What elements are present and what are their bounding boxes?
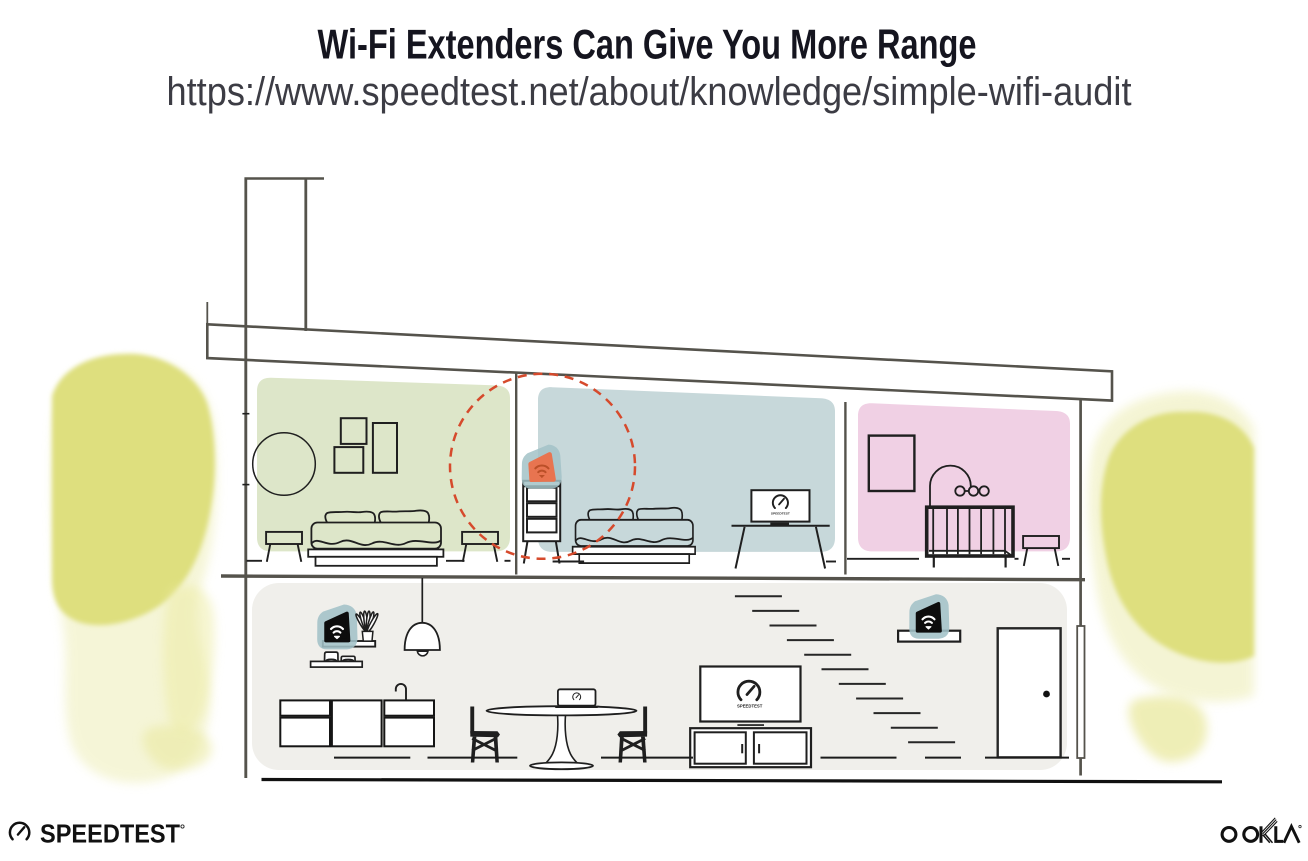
svg-text:SPEEDTEST: SPEEDTEST [771,511,790,515]
svg-text:SPEEDTEST: SPEEDTEST [737,703,763,708]
svg-text:https://www.speedtest.net/abou: https://www.speedtest.net/about/knowledg… [167,70,1132,114]
svg-text:SPEEDTEST: SPEEDTEST [40,821,180,849]
svg-text:Wi-Fi Extenders Can Give You M: Wi-Fi Extenders Can Give You More Range [318,21,977,68]
